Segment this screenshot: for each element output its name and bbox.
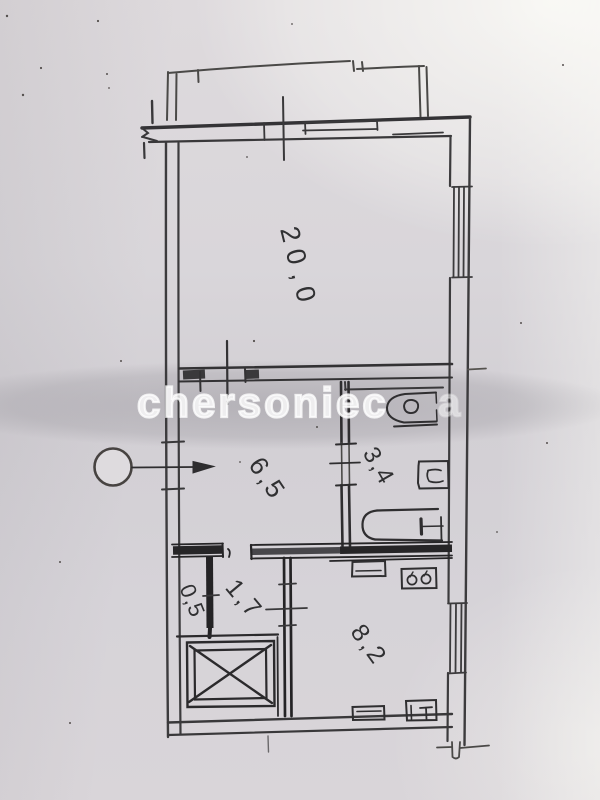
svg-text:3,4: 3,4 — [357, 442, 400, 490]
svg-text:1,7: 1,7 — [220, 574, 269, 624]
svg-text:a: a — [438, 381, 461, 425]
svg-text:20,0: 20,0 — [274, 223, 324, 312]
svg-text:8,2: 8,2 — [345, 619, 393, 671]
svg-text:6,5: 6,5 — [243, 451, 293, 505]
svg-text:chersoniec: chersoniec — [137, 379, 389, 426]
